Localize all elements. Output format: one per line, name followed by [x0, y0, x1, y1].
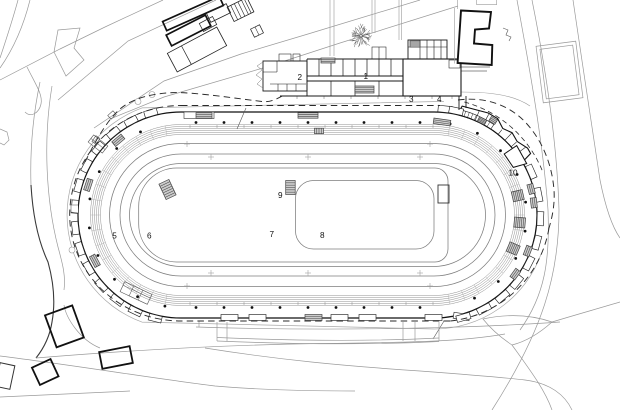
svg-text:2: 2: [298, 73, 303, 82]
svg-text:9: 9: [278, 191, 283, 200]
svg-text:5: 5: [112, 232, 117, 241]
svg-text:6: 6: [147, 232, 152, 241]
svg-text:4: 4: [437, 95, 442, 104]
svg-text:7: 7: [270, 230, 275, 239]
svg-text:1: 1: [364, 72, 369, 81]
svg-text:3: 3: [409, 95, 414, 104]
svg-text:8: 8: [320, 231, 325, 240]
svg-text:10: 10: [509, 169, 519, 178]
